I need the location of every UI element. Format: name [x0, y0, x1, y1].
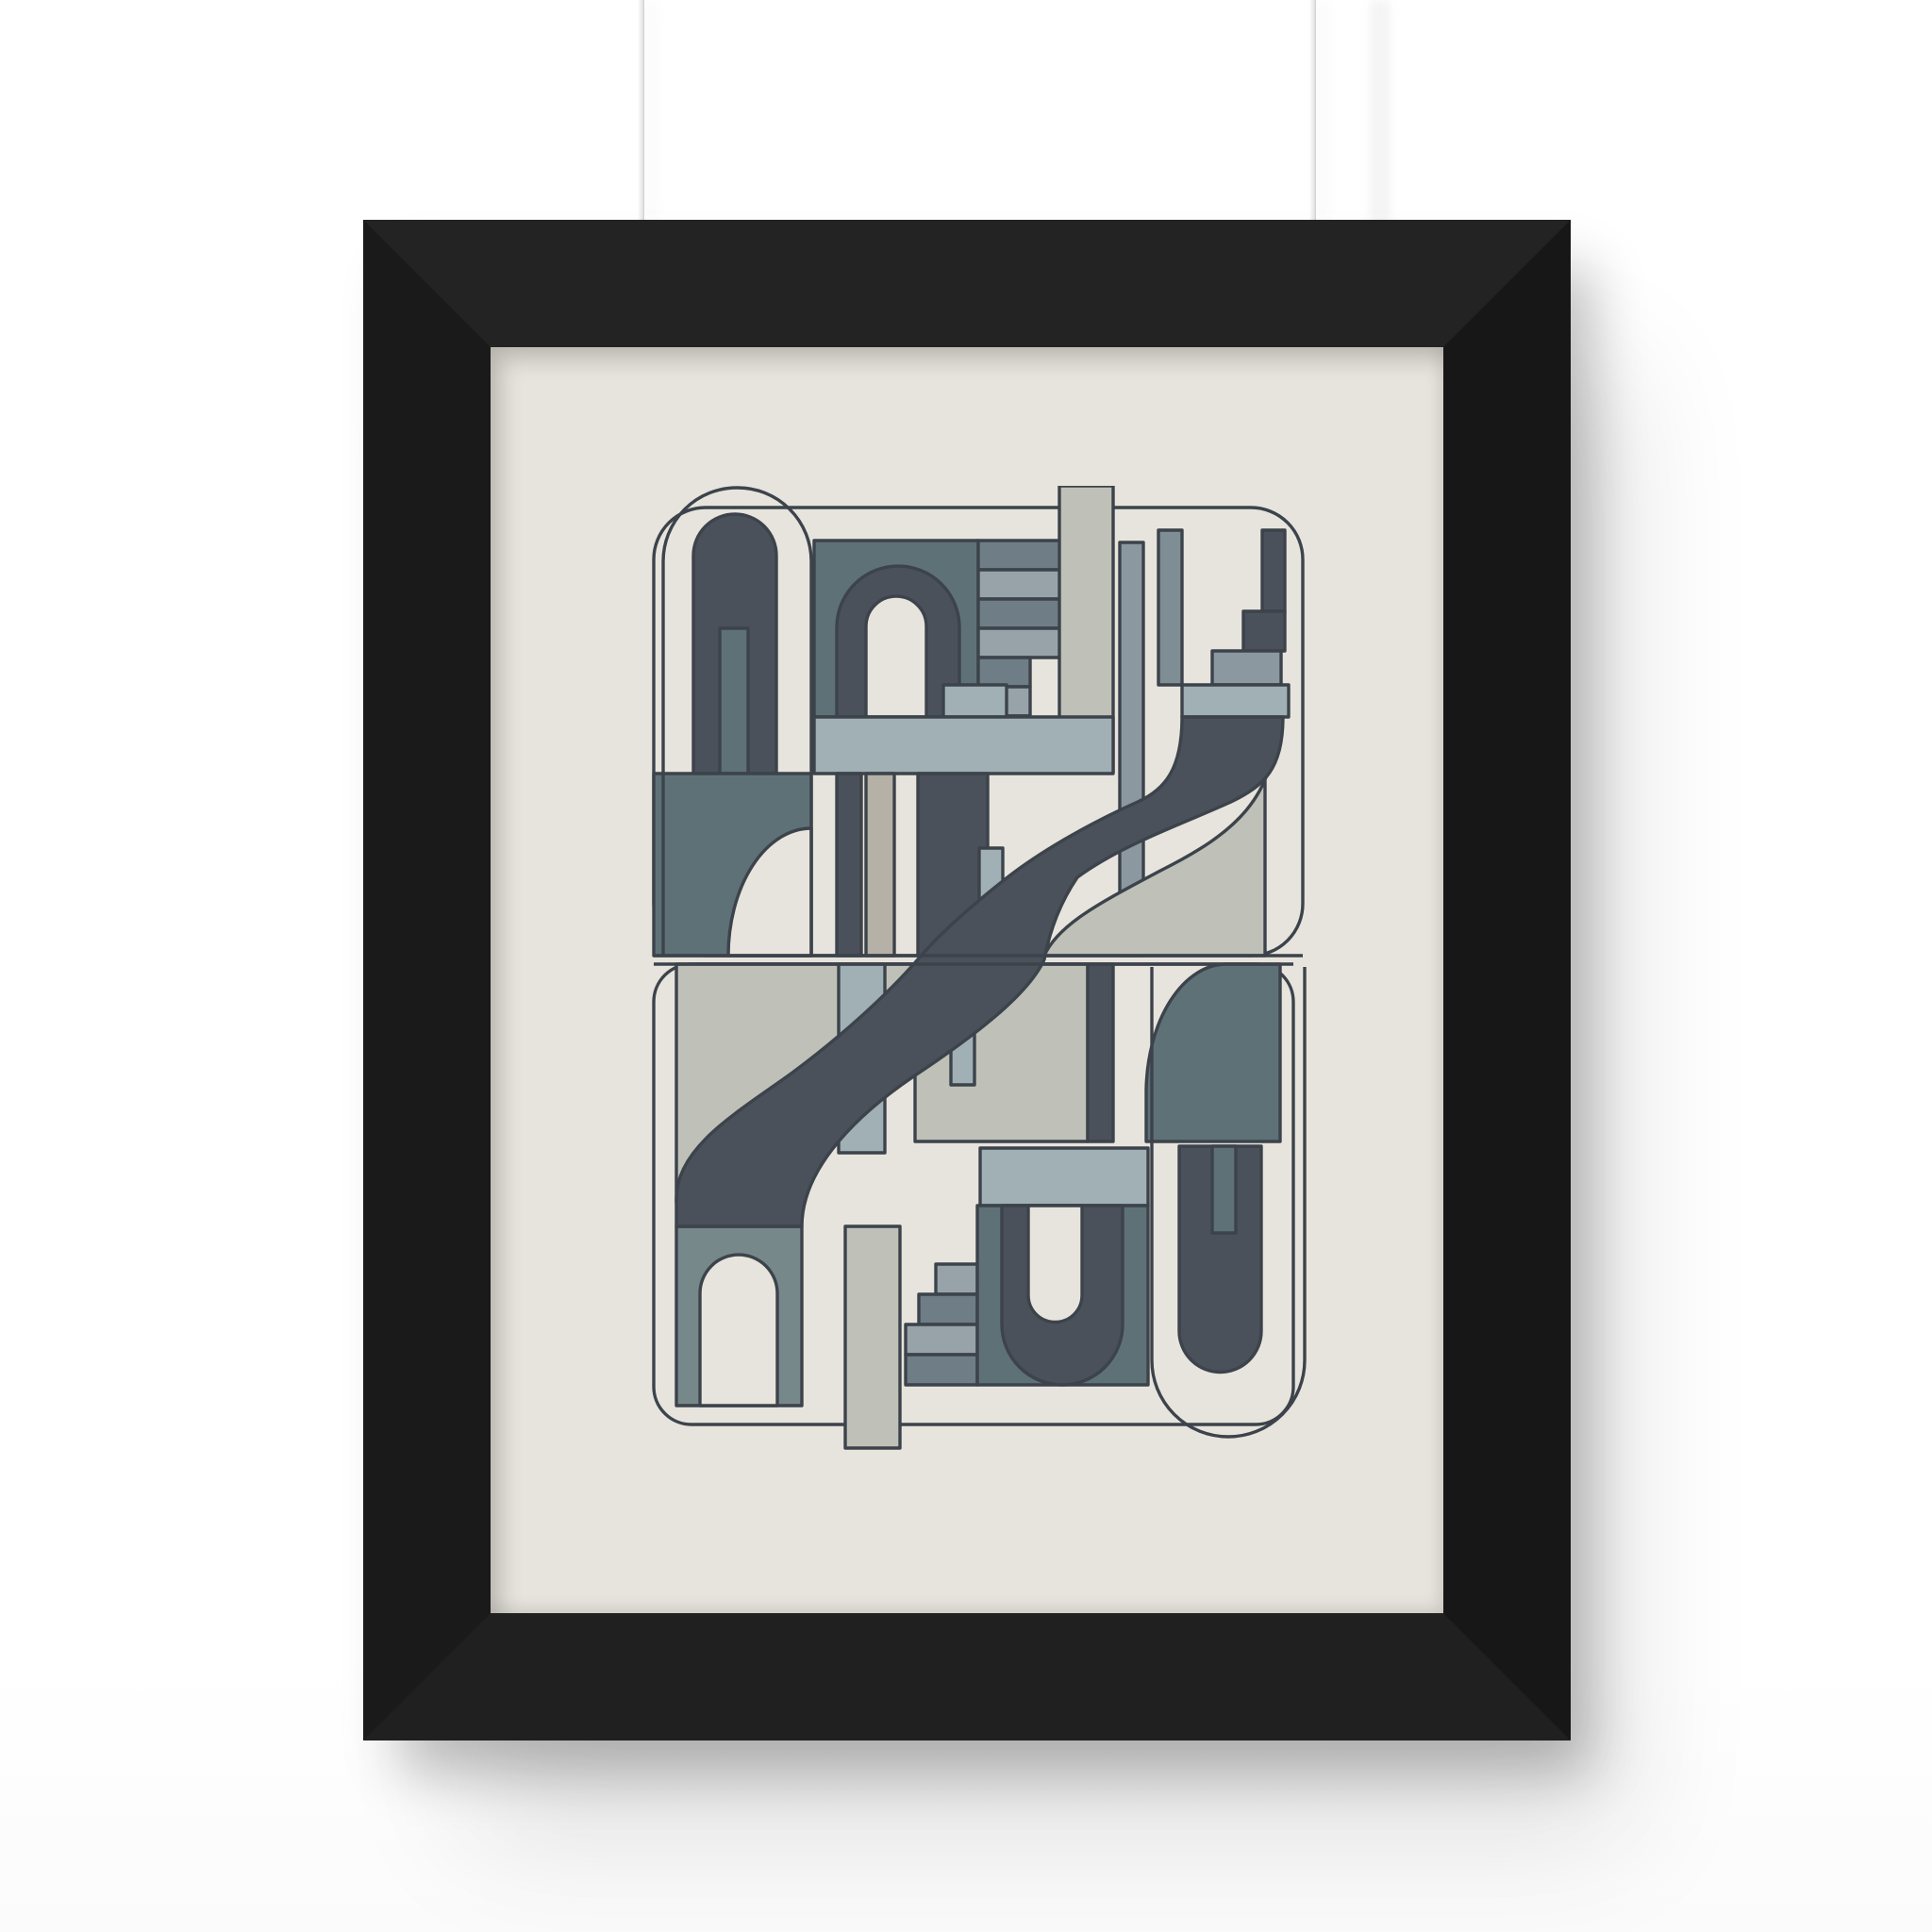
u-shape-cream-inner	[1028, 1206, 1082, 1323]
bar-blue-notch	[943, 685, 1007, 717]
column-gray-2	[1158, 530, 1182, 685]
column-dark-top-right	[1262, 530, 1285, 611]
abstract-artwork	[632, 486, 1311, 1457]
stripe	[978, 599, 1061, 628]
step-gray	[1212, 651, 1281, 685]
wall	[0, 0, 1932, 1932]
step-dark	[1243, 611, 1285, 651]
hanging-string-right	[1309, 0, 1316, 224]
tower-light-bottom	[845, 1226, 900, 1448]
stripe	[906, 1324, 977, 1355]
column-warm-gray	[866, 774, 894, 956]
stripe	[978, 628, 1061, 658]
stripe	[919, 1294, 977, 1324]
n-arch-cream-opening	[700, 1255, 777, 1406]
stripe-stack-bottom	[906, 1264, 977, 1385]
stripe	[978, 541, 1061, 570]
stripe	[978, 570, 1061, 599]
u-right-teal-stripe	[1212, 1146, 1236, 1233]
teal-wave-block	[1146, 964, 1280, 1141]
bar-blue-upper	[1182, 685, 1289, 717]
column-dark-mid	[837, 774, 861, 956]
bar-blue-bottom	[980, 1148, 1148, 1206]
stripe	[936, 1264, 977, 1294]
stripe	[906, 1355, 977, 1385]
mat-paper	[491, 347, 1443, 1613]
arch-cream-middle	[866, 596, 926, 717]
stripe	[978, 658, 1030, 687]
hanging-string-shadow	[1370, 0, 1391, 224]
teal-inset-rect	[720, 628, 748, 774]
picture-frame	[363, 220, 1571, 1740]
column-dark-bottom-mid	[1088, 964, 1113, 1141]
hanging-string-left	[638, 0, 644, 224]
bar-blue-lower	[814, 717, 1113, 774]
